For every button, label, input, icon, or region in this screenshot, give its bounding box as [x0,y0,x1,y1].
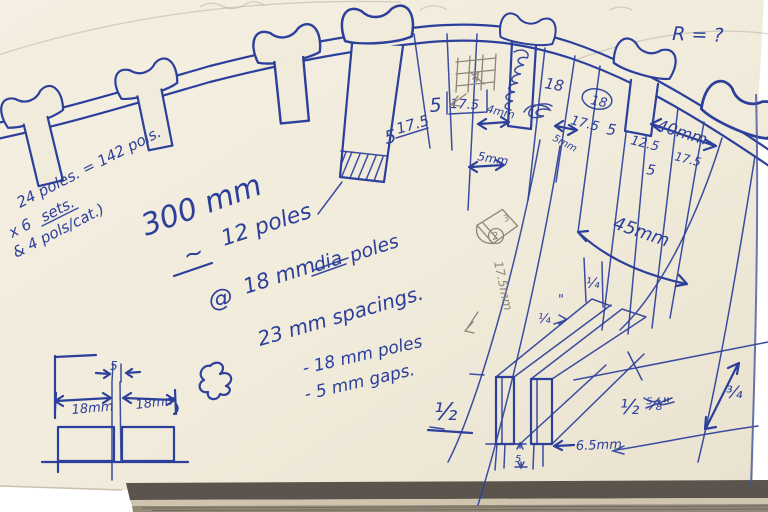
dim-bl-gap: 5 [110,359,118,373]
dim-three-quarter: ¾ [726,383,743,403]
dim-pole18-a: 18 [543,74,565,95]
dim-half-a: ½ [434,398,457,426]
dim-gap5-b: 5 [429,94,443,117]
page-stack [126,480,768,512]
dim-quarter-a: ¼ [586,276,600,292]
dim-half-b: ½ [620,395,640,419]
dim-five-eighth: ⅝" [646,395,670,415]
sketch-canvas: 24 poles. = 142 pols. x 6 sets. & 4 pols… [0,0,768,512]
dim-width65: 6.5mm [576,437,623,454]
note-at-symbol: @ [206,282,234,314]
dim-quarter-b: ¼ [538,312,551,327]
ditto-mark: " [558,293,564,308]
photographed-notebook-page: 24 poles. = 142 pols. x 6 sets. & 4 pols… [0,0,768,512]
radius-question-note: R = ? [672,23,724,47]
